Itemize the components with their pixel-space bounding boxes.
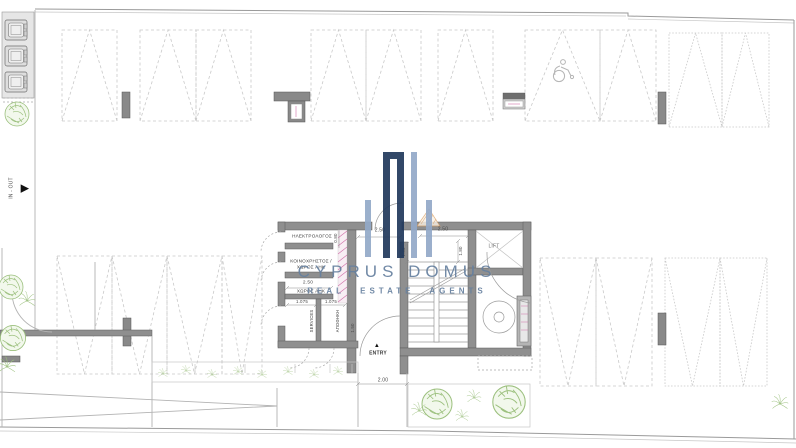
parking-bays-bottom-right [540, 258, 767, 386]
room-label-storage-left: SERVICES [310, 310, 314, 333]
room-label-storage-right: ΑΠΟΘΗΚΗ [336, 310, 340, 333]
entry-arrow-icon: ▲ [374, 343, 380, 349]
dimension-elec-depth: 0.80 [334, 233, 338, 242]
in-out-label: IN - OUT [10, 177, 15, 199]
t-column [274, 92, 310, 122]
shrub-icon [283, 366, 293, 375]
tree-icon [0, 325, 25, 350]
dimension-lobby-depth: 1.80 [459, 246, 463, 255]
bin-store-strip [2, 12, 34, 102]
shrub-icon [772, 394, 789, 408]
parking-bay [57, 256, 112, 374]
dimension-walkway: 2.00 [378, 379, 389, 384]
room-label-eac: ΧΩΡΟΣ ΑΗΚ [297, 290, 325, 295]
shrub-icon [19, 291, 36, 305]
parking-bay [140, 30, 196, 121]
dimension-storage1: 1.075 [296, 300, 308, 304]
parking-bay-disabled [525, 30, 600, 121]
parking-bay [222, 256, 262, 374]
staircase [408, 262, 468, 342]
parking-bay [722, 33, 769, 127]
wall-insulation-hatch [338, 230, 347, 303]
electrical-panel [517, 296, 531, 346]
shrub-icon [309, 369, 319, 378]
room-label-communal-2: ΧΩΡΟΣ ΑΗΚ [297, 266, 325, 271]
parking-bay [196, 30, 251, 121]
parking-bay [669, 33, 722, 127]
site-boundary [0, 9, 796, 443]
floor-plan-page: ΗΛΕΚΤΡΟΛΟΓΟΣ ΚΟΙΝΟΧΡΗΣΤΟΣ / ΧΩΡΟΣ ΑΗΚ 2.… [0, 0, 796, 448]
parking-bay [600, 30, 656, 121]
meter-wall [503, 93, 525, 109]
entry-label: ENTRY [369, 352, 387, 357]
lift-shaft [476, 231, 523, 268]
dimension-storage-depth: 1.50 [351, 323, 355, 332]
dimension-lobby-width: 2.50 [438, 228, 449, 233]
parking-bay [62, 30, 117, 121]
parking-bay [112, 256, 167, 374]
waste-bins-icon [5, 20, 27, 92]
landscaping [0, 102, 788, 421]
dimension-eac-width: 2.50 [303, 282, 313, 287]
dimension-corridor-width: 2.50 [375, 229, 386, 234]
parking-bay [720, 258, 767, 386]
room-label-communal-1: ΚΟΙΝΟΧΡΗΣΤΟΣ / [290, 260, 331, 265]
shrub-icon [158, 368, 168, 377]
shrub-icon [455, 409, 468, 420]
parking-bay [311, 30, 366, 121]
wheelchair-icon [553, 60, 573, 82]
parking-bay [366, 30, 421, 121]
dimension-storage2: 1.075 [325, 300, 337, 304]
lobby-circle [483, 301, 515, 333]
parking-bay [596, 258, 652, 386]
parking-bay [167, 256, 222, 374]
shrub-icon [333, 366, 343, 375]
parking-bay [540, 258, 596, 386]
in-out-arrow-icon: ▶ [21, 184, 30, 195]
room-label-lift: LIFT [488, 245, 499, 250]
room-label-electrician: ΗΛΕΚΤΡΟΛΟΓΟΣ [292, 235, 332, 240]
parking-bay [665, 258, 720, 386]
canopy-hatch [417, 209, 440, 226]
parking-bays-bottom-left [57, 256, 262, 374]
tree-icon [422, 389, 452, 419]
tree-icon [0, 275, 23, 299]
tree-icon [5, 102, 29, 126]
shrub-icon [467, 390, 481, 402]
dimension-corridor-depth: 1.35 [402, 247, 406, 256]
floor-plan-drawing [0, 0, 796, 448]
tree-icon [493, 386, 525, 418]
shrub-icon [181, 365, 191, 374]
parking-bay [438, 30, 493, 121]
shrub-icon [207, 369, 217, 378]
